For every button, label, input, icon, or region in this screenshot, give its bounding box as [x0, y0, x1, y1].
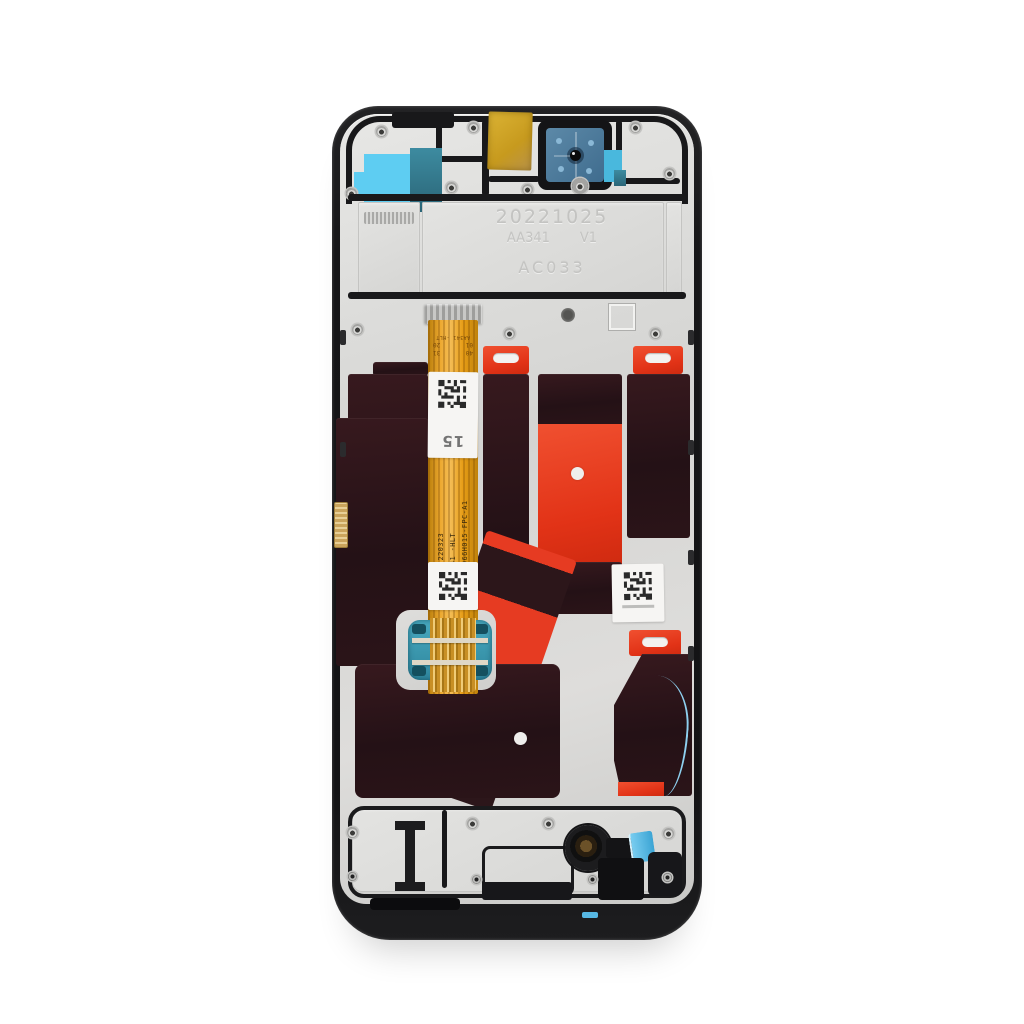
adhesive-panel-right: [627, 374, 690, 538]
square-stamp-outline: [609, 304, 635, 330]
flex-contact-fingers: [430, 618, 476, 692]
flex-cable-label: 15: [428, 372, 479, 458]
bottom-plastic-piece: [482, 882, 572, 900]
film-dot: [558, 166, 564, 172]
label-fine-print: [622, 605, 654, 609]
screw-hole: [630, 122, 641, 133]
rail-slot: [688, 440, 694, 455]
flex-model-line: AA341 -HLT: [447, 459, 459, 579]
cyan-film-fragment: [614, 170, 626, 186]
pin-label: 01: [466, 341, 473, 348]
rail-slot: [688, 646, 694, 661]
gasket-segment: [488, 176, 540, 182]
screw-hole: [650, 328, 661, 339]
side-zif-connector: [334, 502, 348, 548]
screw-hole: [664, 168, 675, 179]
screw-hole: [376, 126, 387, 137]
flex-top-marking: AA341 -HLT: [430, 334, 476, 340]
label-number: 15: [428, 432, 478, 450]
qr-code: [624, 572, 652, 600]
screw-hole: [543, 818, 554, 829]
red-pull-tab: [483, 346, 529, 374]
film-dot: [588, 140, 594, 146]
ibeam-bracket: [395, 821, 425, 891]
gasket-segment: [392, 112, 454, 128]
red-adhesive-mid: [538, 424, 622, 566]
frame-engravings: 20221025 AA341 V1 AC033: [452, 206, 652, 277]
pin-label: 40: [466, 349, 473, 356]
engraved-model-code: AA341: [507, 231, 550, 246]
connector-latch-bar: [412, 660, 488, 665]
rail-slot: [688, 330, 694, 345]
bottom-plastic-piece: [598, 858, 644, 900]
qr-code: [438, 380, 466, 408]
screw-hole: [446, 182, 457, 193]
screw-hole: [467, 818, 478, 829]
connector-tab: [474, 666, 488, 676]
flex-part-number: HTF066H015-FPC-A1: [459, 459, 471, 579]
shield-plate-right: [666, 202, 682, 298]
pull-tab-hole: [642, 637, 668, 647]
serial-label: [611, 564, 664, 623]
adhesive-alignment-dot: [514, 732, 527, 745]
engraved-version: V1: [580, 231, 597, 246]
screw-hole: [663, 873, 672, 882]
rail-slot: [340, 442, 346, 457]
pin-label: 20: [433, 341, 440, 348]
pull-tab-hole: [645, 353, 671, 363]
flex-cable-printed-codes: JBE 220323 AA341 -HLT HTF066H015-FPC-A1: [435, 459, 471, 579]
engraved-date-code: 20221025: [452, 206, 652, 228]
pull-tab-hole: [493, 353, 519, 363]
blue-film-tab-small: [582, 912, 598, 918]
connector-tab: [412, 666, 426, 676]
flex-batch-code: JBE 220323: [435, 459, 447, 579]
screw-hole: [504, 328, 515, 339]
gasket-line: [348, 292, 686, 299]
gasket-segment: [436, 156, 488, 162]
adhesive-alignment-dot: [571, 467, 584, 480]
assembly-parts: 20221025 AA341 V1 AC033: [332, 106, 702, 940]
speaker-slot: [370, 898, 460, 910]
mic-hole: [561, 308, 575, 322]
red-pull-tab: [633, 346, 683, 374]
qr-code: [439, 572, 467, 600]
textured-strip: [364, 212, 414, 224]
gasket-segment: [442, 810, 447, 888]
flex-cable-label: [428, 562, 478, 610]
red-pull-tab: [629, 630, 681, 656]
screw-hole: [663, 828, 674, 839]
film-dot: [586, 168, 592, 174]
screw-hole: [588, 875, 597, 884]
camera-protective-film: [546, 128, 604, 182]
adhesive-panel-mid-upper: [538, 374, 622, 428]
screw-hole: [468, 122, 479, 133]
camera-lens-hole: [570, 150, 581, 161]
flex-pin-markings: 40 31 01 20 AA341 -HLT: [430, 323, 476, 357]
rail-slot: [340, 330, 346, 345]
speaker-hole: [572, 178, 588, 194]
lcd-frame-assembly: 20221025 AA341 V1 AC033: [332, 106, 702, 940]
kapton-sticker: [487, 111, 533, 170]
gasket-line: [348, 194, 686, 201]
film-dot: [556, 138, 562, 144]
connector-tab: [412, 624, 426, 634]
product-photo: 20221025 AA341 V1 AC033: [0, 0, 1024, 1024]
pin-label: 31: [433, 349, 440, 356]
rail-slot: [688, 550, 694, 565]
screw-hole: [347, 827, 358, 838]
connector-tab: [474, 624, 488, 634]
screw-hole: [472, 875, 481, 884]
screw-hole: [352, 324, 363, 335]
engraved-part-code: AC033: [452, 258, 652, 277]
screw-hole: [348, 872, 357, 881]
connector-latch-bar: [412, 638, 488, 643]
